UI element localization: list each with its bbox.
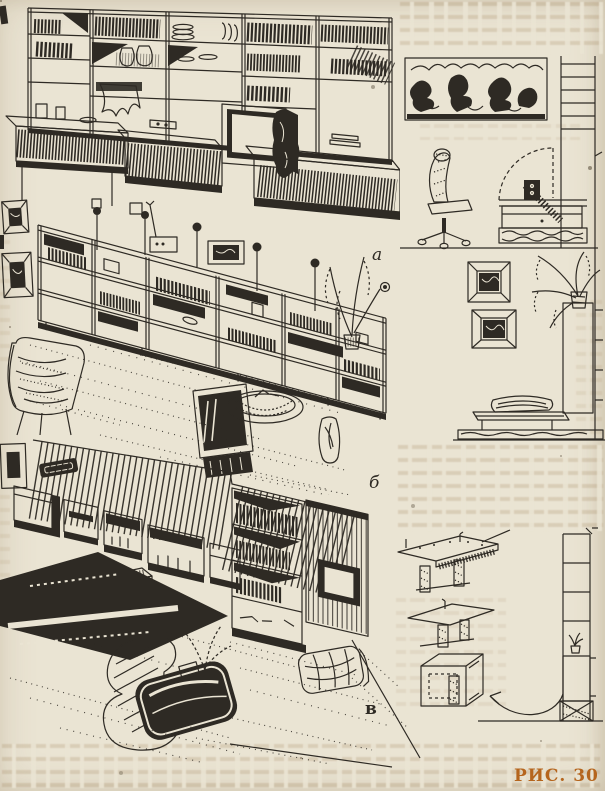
figure-label-a: а	[372, 247, 382, 264]
coffee-table	[132, 658, 241, 744]
figure-label-v: в	[365, 701, 377, 718]
desk	[6, 104, 128, 206]
base-box	[560, 701, 593, 721]
shelf-detail-3	[421, 654, 483, 706]
vases	[116, 46, 160, 66]
draped-cloth	[96, 82, 142, 116]
framed-picture	[468, 262, 510, 302]
trailing-plant	[532, 252, 600, 328]
scan-specks	[0, 0, 2, 2]
figure-label-b: б	[369, 475, 379, 492]
rug	[0, 552, 228, 660]
leader-arrow	[490, 692, 563, 715]
shelf-detail-2	[408, 599, 494, 647]
floor-edge	[230, 640, 420, 767]
pole-shelf-unit	[478, 528, 603, 721]
shelf-detail-drawings	[393, 518, 605, 740]
plant	[325, 257, 380, 349]
small-plant	[569, 633, 583, 653]
wall-pictures	[92, 199, 244, 264]
armchair	[8, 338, 84, 435]
low-shelving-unit	[38, 225, 386, 421]
picture-frame	[2, 252, 33, 297]
cabinet-mid	[118, 120, 222, 193]
outlet-symbol	[381, 283, 390, 292]
bench-with-cushion	[453, 396, 605, 440]
tall-cabinet	[563, 303, 603, 413]
floor-cushion	[297, 644, 371, 697]
fold-down-desk	[499, 148, 587, 243]
radio	[146, 201, 177, 252]
drawing-c-slatted-wall-room	[0, 428, 425, 768]
picture-frame	[0, 444, 27, 489]
bleed-through-text	[400, 2, 603, 54]
office-chair	[418, 149, 472, 249]
wall-elevation	[398, 248, 605, 448]
scanned-book-page: а б в РИС. 30	[0, 0, 605, 791]
desk-elevation	[398, 56, 605, 253]
figure-caption: РИС. 30	[514, 766, 599, 786]
shelf-detail-1	[398, 530, 510, 592]
framed-picture	[472, 310, 516, 348]
picture-frame	[2, 200, 29, 234]
